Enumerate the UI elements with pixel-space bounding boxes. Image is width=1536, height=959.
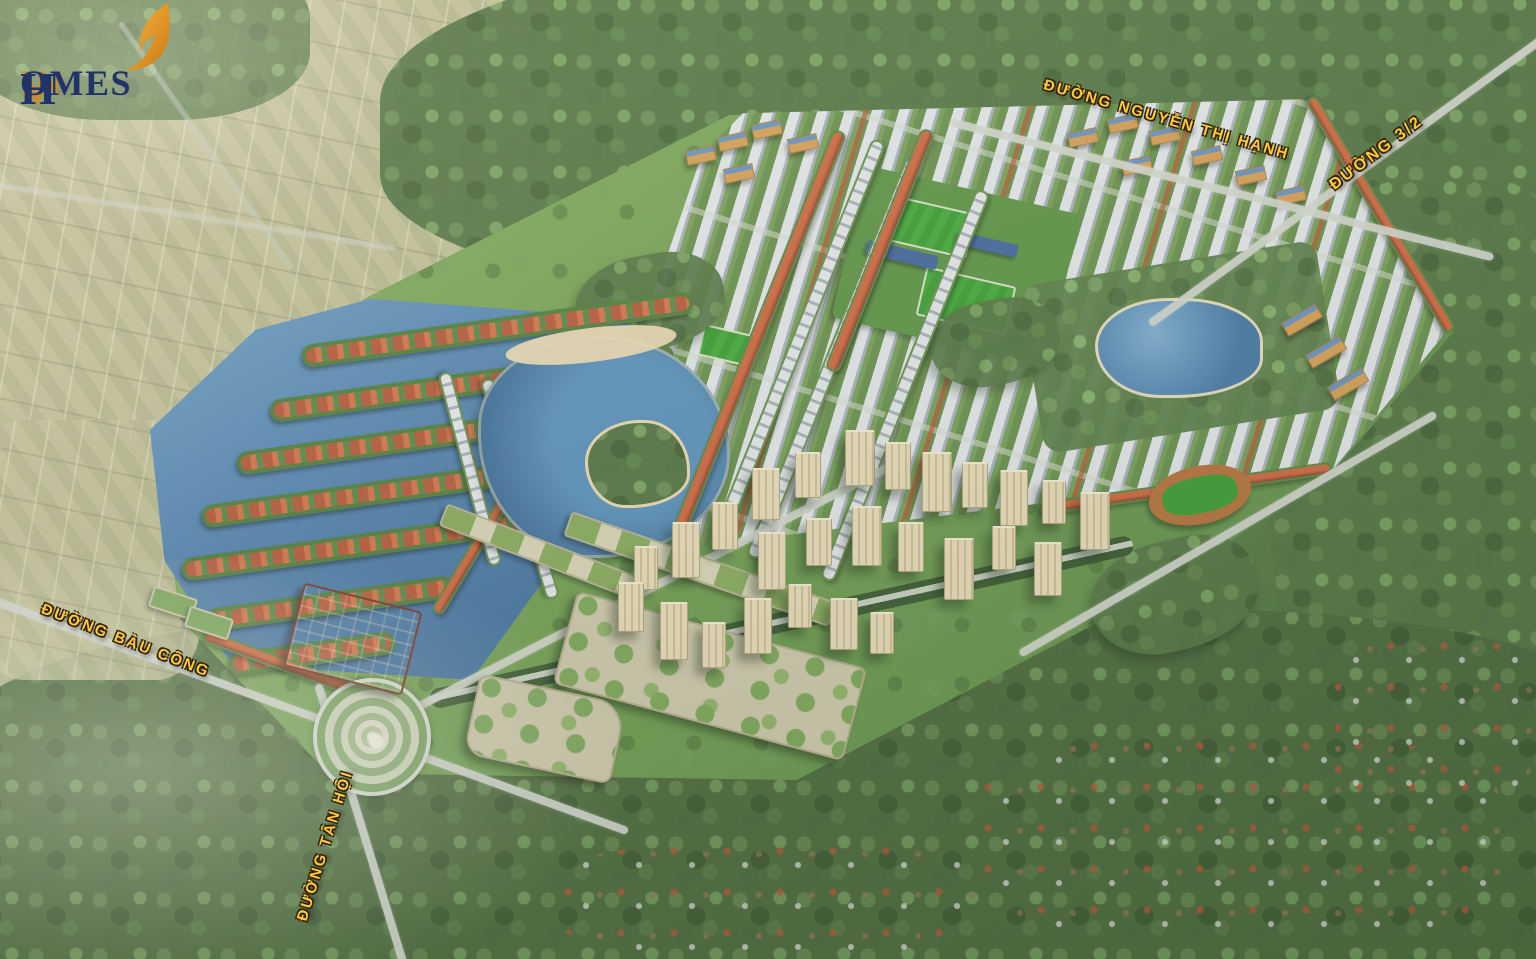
highrise-tower [672,522,700,578]
highrise-tower [618,582,644,632]
highrise-tower [885,442,911,490]
village-houses-right [1330,640,1536,800]
highrise-tower [922,452,952,512]
logo-text-omes: OMES [20,62,132,104]
highrise-tower [870,612,894,654]
highrise-tower [1000,470,1028,526]
highrise-tower [1042,480,1066,524]
highrise-tower [944,538,974,600]
highrise-tower [845,430,875,486]
highrise-tower [1034,542,1062,596]
fountain-center [369,734,383,748]
highrise-tower [788,584,812,628]
east-lake [1095,298,1263,398]
highrise-tower [962,462,988,508]
highrise-tower [830,598,858,650]
highrise-tower [758,532,786,590]
highrise-tower [852,506,882,566]
lake-island [585,420,690,508]
highrise-tower [992,526,1016,570]
roundabout-plaza [313,678,431,796]
highrise-tower [752,468,780,520]
highrise-tower [795,452,821,498]
highrise-tower [744,598,772,654]
highrise-tower [1080,492,1110,550]
stadium-pitch [1159,469,1241,520]
village-houses-bottom-center [560,845,980,955]
masterplan-aerial-render: ĐƯỜNG NGUYỄN THỊ HẠNH ĐƯỜNG 3/2 ĐƯỜNG BÀ… [0,0,1536,959]
highrise-tower [806,518,832,566]
vinhomes-logo: VINHOMES [14,4,284,126]
highrise-tower [702,622,726,668]
highrise-tower [660,602,688,660]
highrise-tower [898,522,924,572]
highrise-tower [712,502,738,550]
